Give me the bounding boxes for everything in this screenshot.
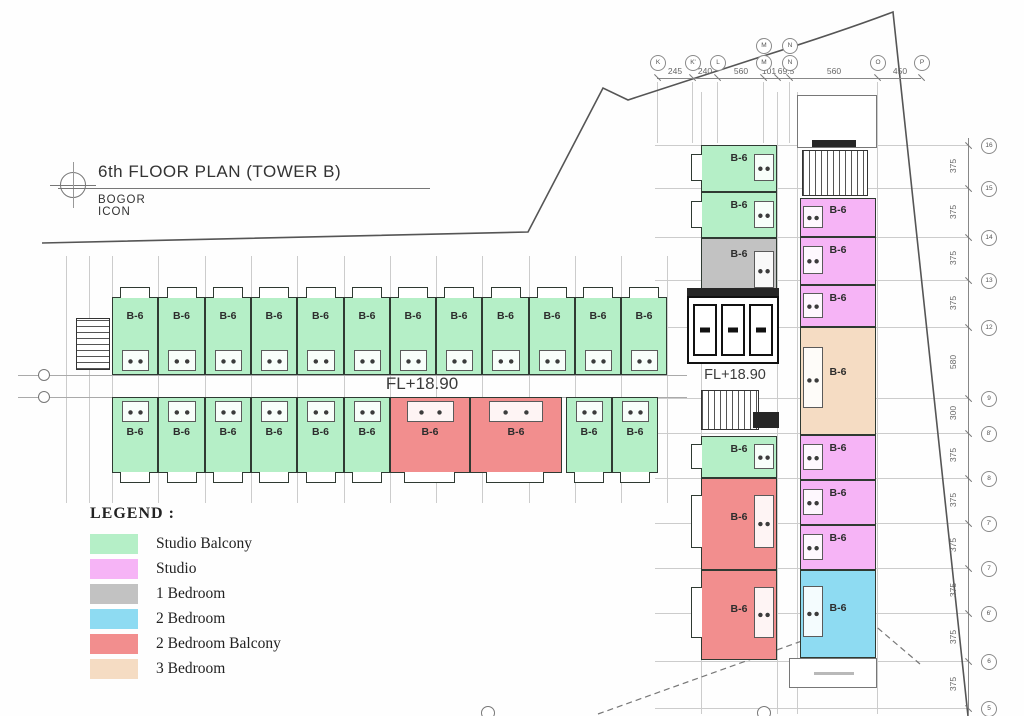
legend-item: 2 Bedroom bbox=[90, 606, 281, 631]
dimension-value: 375 bbox=[948, 485, 958, 515]
stair-label-bar bbox=[812, 140, 856, 147]
dimension-value: 245 bbox=[662, 66, 688, 76]
legend-item: 2 Bedroom Balcony bbox=[90, 631, 281, 656]
dimension-value: 580 bbox=[948, 347, 958, 377]
grid-bubble-7p: 7' bbox=[981, 516, 997, 532]
legend-swatch bbox=[90, 584, 138, 604]
lobby-bar bbox=[687, 288, 779, 296]
grid-bubble-8: 8 bbox=[981, 471, 997, 487]
unit-label: B-601 bbox=[801, 602, 875, 616]
legend-item: 3 Bedroom bbox=[90, 656, 281, 681]
legend-heading: LEGEND : bbox=[90, 505, 281, 523]
legend-label: Studio Balcony bbox=[156, 535, 252, 553]
unit-b6-33: B-633 bbox=[297, 297, 344, 375]
grid-bubble-7: 7 bbox=[981, 561, 997, 577]
unit-b6-15: B-615 bbox=[800, 237, 876, 285]
dimension-value: 375 bbox=[948, 622, 958, 652]
unit-label: B-623 bbox=[530, 310, 574, 324]
unit-b6-22: B-622 bbox=[390, 397, 470, 473]
unit-label: B-635 bbox=[252, 310, 296, 324]
grid-bubble-o: O bbox=[870, 55, 886, 71]
unit-label: B-618A bbox=[613, 426, 657, 440]
unit-b6-20: B-620 bbox=[470, 397, 562, 473]
grid-bubble bbox=[38, 391, 50, 403]
dimension-value: 450 bbox=[887, 66, 913, 76]
unit-b6-01: B-601 bbox=[800, 570, 876, 658]
unit-label: B-617 bbox=[801, 204, 875, 218]
grid-bubble bbox=[38, 369, 50, 381]
elevator-icon bbox=[693, 304, 717, 356]
unit-label: B-605 bbox=[801, 487, 875, 501]
dimension-value: 375 bbox=[948, 243, 958, 273]
elevator-icon bbox=[721, 304, 745, 356]
unit-label: B-620 bbox=[471, 426, 561, 440]
unit-label: B-602 bbox=[702, 603, 776, 617]
unit-b6-08: B-608 bbox=[701, 436, 777, 478]
grid-bubble-15: 15 bbox=[981, 181, 997, 197]
unit-b6-06: B-606 bbox=[701, 478, 777, 570]
dimension-value: 375 bbox=[948, 151, 958, 181]
legend-label: 2 Bedroom Balcony bbox=[156, 635, 281, 653]
unit-b6-23: B-623 bbox=[529, 297, 575, 375]
unit-label: B-615 bbox=[801, 244, 875, 258]
unit-label: B-611 bbox=[801, 292, 875, 306]
unit-label: B-637 bbox=[206, 310, 250, 324]
legend-swatch bbox=[90, 659, 138, 679]
unit-label: B-636 bbox=[159, 426, 204, 440]
legend-label: 3 Bedroom bbox=[156, 660, 225, 678]
floor-level-label-main: FL+18.90 bbox=[352, 374, 492, 394]
unit-label: B-603 bbox=[801, 532, 875, 546]
unit-b6-16: B-616 bbox=[701, 145, 777, 192]
grid-bubble-k': K' bbox=[685, 55, 701, 71]
grid-bubble-6: 6 bbox=[981, 654, 997, 670]
unit-label: B-626 bbox=[345, 426, 389, 440]
unit-label: B-627 bbox=[437, 310, 481, 324]
unit-b6-31: B-631 bbox=[344, 297, 390, 375]
unit-b6-26: B-626 bbox=[344, 397, 390, 473]
unit-b6-11: B-611 bbox=[800, 285, 876, 327]
unit-b6-30: B-630 bbox=[251, 397, 297, 473]
unit-b6-27: B-627 bbox=[436, 297, 482, 375]
grid-bubble-12: 12 bbox=[981, 320, 997, 336]
legend-item: Studio bbox=[90, 556, 281, 581]
legend-items: Studio BalconyStudio1 Bedroom2 Bedroom2 … bbox=[90, 531, 281, 681]
grid-bubble-p: P bbox=[914, 55, 930, 71]
unit-label: B-639 bbox=[159, 310, 204, 324]
unit-b6-21: B-621 bbox=[575, 297, 621, 375]
grid-bubble-9: 9 bbox=[981, 391, 997, 407]
unit-label: B-633 bbox=[298, 310, 343, 324]
unit-b6-25: B-625 bbox=[482, 297, 529, 375]
unit-label: B-622 bbox=[391, 426, 469, 440]
unit-b6-12: B-612 bbox=[701, 192, 777, 238]
grid-bubble bbox=[481, 706, 495, 716]
legend-item: Studio Balcony bbox=[90, 531, 281, 556]
legend: LEGEND : Studio BalconyStudio1 Bedroom2 … bbox=[90, 505, 281, 681]
title-rule bbox=[58, 188, 430, 189]
unit-b6-18b: B-618B bbox=[566, 397, 612, 473]
legend-label: Studio bbox=[156, 560, 196, 578]
unit-label: B-606 bbox=[702, 511, 776, 525]
unit-label: B-638 bbox=[113, 426, 157, 440]
unit-label: B-612 bbox=[702, 199, 776, 213]
unit-b6-02: B-602 bbox=[701, 570, 777, 660]
unit-label: B-641 bbox=[113, 310, 157, 324]
grid-bubble-8p: 8' bbox=[981, 426, 997, 442]
grid-bubble-n: N bbox=[782, 38, 798, 54]
floor-plan-canvas: 6th FLOOR PLAN (TOWER B) BOGOR ICON B-64… bbox=[0, 0, 1024, 716]
unit-b6-03: B-603 bbox=[800, 525, 876, 570]
grid-bubble bbox=[757, 706, 771, 716]
unit-b6-07: B-607 bbox=[800, 435, 876, 480]
unit-label: B-608 bbox=[702, 443, 776, 457]
unit-b6-37: B-637 bbox=[205, 297, 251, 375]
grid-bubble-14: 14 bbox=[981, 230, 997, 246]
grid-bubble-l: L bbox=[710, 55, 726, 71]
grid-bubble-n: N bbox=[782, 55, 798, 71]
unit-b6-39: B-639 bbox=[158, 297, 205, 375]
legend-label: 1 Bedroom bbox=[156, 585, 225, 603]
legend-swatch bbox=[90, 609, 138, 629]
project-name: BOGOR ICON bbox=[98, 194, 146, 218]
unit-label: B-619 bbox=[622, 310, 666, 324]
stairs-northeast-icon bbox=[802, 150, 868, 196]
dimension-value: 375 bbox=[948, 197, 958, 227]
unit-b6-18a: B-618A bbox=[612, 397, 658, 473]
dimension-value: 375 bbox=[948, 669, 958, 699]
legend-label: 2 Bedroom bbox=[156, 610, 225, 628]
unit-b6-29: B-629 bbox=[390, 297, 436, 375]
unit-b6-09: B-609 bbox=[800, 327, 876, 435]
unit-b6-35: B-635 bbox=[251, 297, 297, 375]
unit-b6-36: B-636 bbox=[158, 397, 205, 473]
unit-b6-28: B-628 bbox=[297, 397, 344, 473]
grid-bubble-6p: 6' bbox=[981, 606, 997, 622]
unit-label: B-629 bbox=[391, 310, 435, 324]
unit-b6-38: B-638 bbox=[112, 397, 158, 473]
grid-bubble-m: M bbox=[756, 38, 772, 54]
floor-level-label-wing: FL+18.90 bbox=[692, 367, 778, 383]
shaft bbox=[753, 412, 779, 428]
unit-label: B-628 bbox=[298, 426, 343, 440]
stairs-west-icon bbox=[76, 318, 110, 370]
grid-bubble-m: M bbox=[756, 55, 772, 71]
dimension-value: 560 bbox=[821, 66, 847, 76]
dimension-value: 375 bbox=[948, 575, 958, 605]
grid-bubble-16: 16 bbox=[981, 138, 997, 154]
unit-label: B-616 bbox=[702, 152, 776, 166]
unit-b6-19: B-619 bbox=[621, 297, 667, 375]
unit-label: B-609 bbox=[801, 366, 875, 380]
unit-label: B-610 bbox=[702, 248, 776, 262]
unit-b6-17: B-617 bbox=[800, 198, 876, 237]
legend-swatch bbox=[90, 634, 138, 654]
unit-label: B-632 bbox=[206, 426, 250, 440]
grid-bubble-k: K bbox=[650, 55, 666, 71]
elevator-core bbox=[687, 296, 779, 364]
grid-bubble-13: 13 bbox=[981, 273, 997, 289]
dimension-value: 560 bbox=[728, 66, 754, 76]
unit-b6-05: B-605 bbox=[800, 480, 876, 525]
unit-label: B-625 bbox=[483, 310, 528, 324]
dimension-value: 300 bbox=[948, 398, 958, 428]
unit-label: B-630 bbox=[252, 426, 296, 440]
unit-label: B-631 bbox=[345, 310, 389, 324]
dimension-value: 375 bbox=[948, 440, 958, 470]
unit-b6-41: B-641 bbox=[112, 297, 158, 375]
dimension-value: 375 bbox=[948, 288, 958, 318]
elevator-icon bbox=[749, 304, 773, 356]
unit-b6-32: B-632 bbox=[205, 397, 251, 473]
stairs-mid-icon bbox=[701, 390, 759, 430]
legend-swatch bbox=[90, 559, 138, 579]
dimension-line bbox=[968, 138, 969, 716]
unit-label: B-618B bbox=[567, 426, 611, 440]
legend-item: 1 Bedroom bbox=[90, 581, 281, 606]
unit-label: B-621 bbox=[576, 310, 620, 324]
page-title: 6th FLOOR PLAN (TOWER B) bbox=[98, 162, 341, 182]
unit-label: B-607 bbox=[801, 442, 875, 456]
legend-swatch bbox=[90, 534, 138, 554]
grid-bubble-5: 5 bbox=[981, 701, 997, 716]
dimension-value: 375 bbox=[948, 530, 958, 560]
